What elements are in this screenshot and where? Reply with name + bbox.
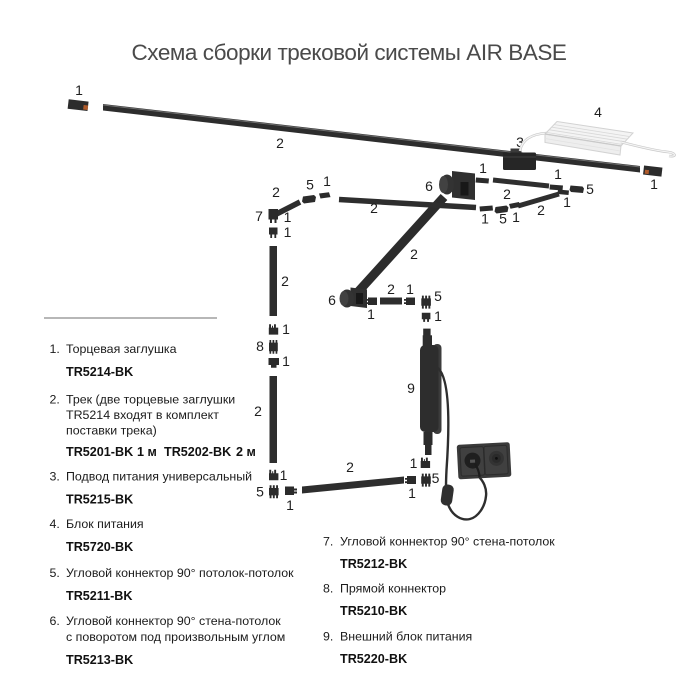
svg-text:1: 1 [434, 308, 442, 324]
svg-text:TR5210-BK: TR5210-BK [340, 604, 407, 618]
svg-text:1: 1 [406, 281, 414, 297]
svg-text:8.: 8. [323, 582, 333, 596]
svg-text:8: 8 [256, 338, 264, 354]
svg-text:1: 1 [408, 485, 416, 501]
svg-text:5: 5 [432, 470, 440, 486]
svg-text:1: 1 [512, 209, 520, 225]
svg-text:2: 2 [276, 135, 284, 151]
svg-text:9: 9 [407, 380, 415, 396]
svg-text:TR5214-BK: TR5214-BK [66, 365, 133, 379]
svg-text:2: 2 [410, 246, 418, 262]
svg-text:TR5720-BK: TR5720-BK [66, 540, 133, 554]
svg-text:1: 1 [650, 176, 658, 192]
svg-text:с поворотом под произвольным у: с поворотом под произвольным углом [66, 630, 285, 644]
svg-text:2: 2 [281, 273, 289, 289]
svg-text:Угловой коннектор 90° стена-по: Угловой коннектор 90° стена-потолок [340, 535, 555, 549]
svg-text:Внешний блок питания: Внешний блок питания [340, 630, 472, 644]
svg-text:1: 1 [286, 497, 294, 513]
svg-text:1: 1 [323, 173, 331, 189]
svg-text:Угловой коннектор 90° потолок-: Угловой коннектор 90° потолок-потолок [66, 566, 294, 580]
svg-text:6: 6 [425, 178, 433, 194]
svg-text:TR5213-BK: TR5213-BK [66, 653, 133, 667]
svg-text:5.: 5. [50, 566, 60, 580]
svg-text:1: 1 [410, 455, 418, 471]
svg-text:2.: 2. [50, 393, 60, 407]
svg-text:5: 5 [499, 211, 507, 227]
svg-text:1: 1 [367, 306, 375, 322]
svg-text:поставки трека): поставки трека) [66, 424, 157, 438]
svg-text:2: 2 [272, 184, 280, 200]
svg-text:Трек (две торцевые заглушки: Трек (две торцевые заглушки [66, 393, 235, 407]
svg-text:4: 4 [594, 104, 602, 120]
svg-text:TR5211-BK: TR5211-BK [66, 589, 133, 603]
svg-text:6: 6 [328, 292, 336, 308]
svg-text:2: 2 [346, 459, 354, 475]
svg-text:2: 2 [387, 281, 395, 297]
svg-text:4.: 4. [50, 517, 60, 531]
svg-text:Торцевая заглушка: Торцевая заглушка [66, 342, 177, 356]
svg-text:9.: 9. [323, 630, 333, 644]
svg-text:TR5201-BK: TR5201-BK [66, 445, 133, 459]
svg-text:1: 1 [280, 467, 288, 483]
svg-text:TR5202-BK: TR5202-BK [164, 445, 231, 459]
svg-text:Прямой коннектор: Прямой коннектор [340, 582, 446, 596]
svg-text:7.: 7. [323, 535, 333, 549]
svg-text:1: 1 [75, 82, 83, 98]
svg-text:2 м: 2 м [236, 445, 256, 459]
svg-text:5: 5 [306, 177, 314, 193]
svg-text:2: 2 [370, 200, 378, 216]
svg-text:5: 5 [434, 288, 442, 304]
svg-text:2: 2 [503, 186, 511, 202]
svg-text:1.: 1. [50, 342, 60, 356]
svg-text:1: 1 [282, 321, 290, 337]
svg-text:1: 1 [563, 194, 571, 210]
svg-text:1: 1 [282, 353, 290, 369]
svg-text:Угловой коннектор 90° стена-по: Угловой коннектор 90° стена-потолок [66, 614, 281, 628]
svg-text:1 м: 1 м [137, 445, 157, 459]
svg-text:3.: 3. [50, 470, 60, 484]
svg-text:TR5215-BK: TR5215-BK [66, 493, 133, 507]
svg-text:2: 2 [254, 403, 262, 419]
svg-text:1: 1 [481, 211, 489, 227]
svg-text:1: 1 [554, 166, 562, 182]
svg-text:2: 2 [537, 202, 545, 218]
svg-text:TR5214 входят в комплект: TR5214 входят в комплект [66, 408, 219, 422]
svg-text:5: 5 [256, 484, 264, 500]
svg-text:1: 1 [284, 224, 292, 240]
svg-text:TR5220-BK: TR5220-BK [340, 652, 407, 666]
svg-text:1: 1 [284, 209, 292, 225]
svg-text:Схема сборки трековой системы: Схема сборки трековой системы AIR BASE [131, 40, 566, 65]
svg-text:Блок питания: Блок питания [66, 517, 144, 531]
svg-text:7: 7 [255, 208, 263, 224]
svg-text:6.: 6. [50, 614, 60, 628]
svg-text:5: 5 [586, 181, 594, 197]
svg-text:1: 1 [479, 160, 487, 176]
svg-text:Подвод питания универсальный: Подвод питания универсальный [66, 470, 252, 484]
svg-text:TR5212-BK: TR5212-BK [340, 557, 407, 571]
